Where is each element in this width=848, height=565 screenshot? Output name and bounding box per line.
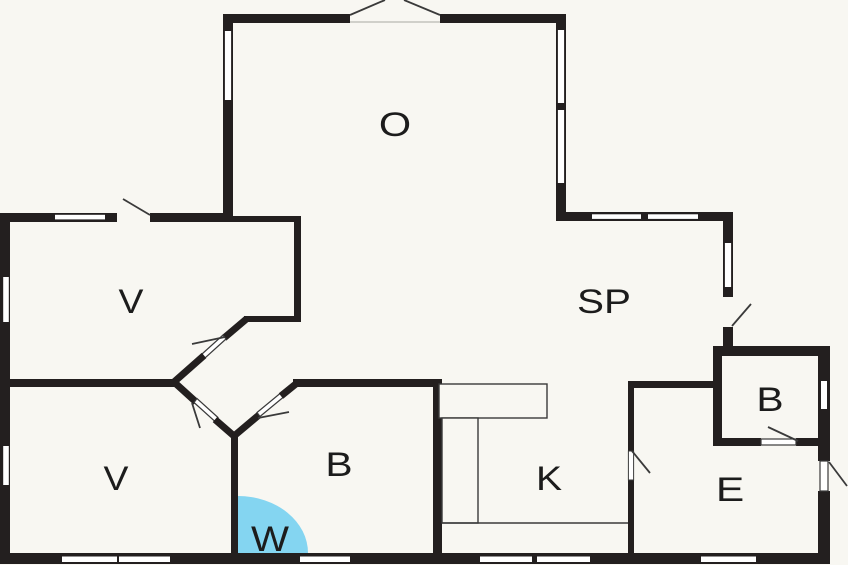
svg-text:V: V	[119, 283, 144, 321]
svg-text:W: W	[251, 519, 289, 558]
svg-text:K: K	[536, 459, 563, 497]
svg-text:O: O	[379, 106, 411, 144]
svg-text:V: V	[104, 460, 129, 498]
svg-text:E: E	[716, 471, 744, 509]
svg-text:B: B	[325, 445, 352, 483]
svg-text:B: B	[756, 380, 783, 418]
svg-text:SP: SP	[577, 282, 631, 320]
